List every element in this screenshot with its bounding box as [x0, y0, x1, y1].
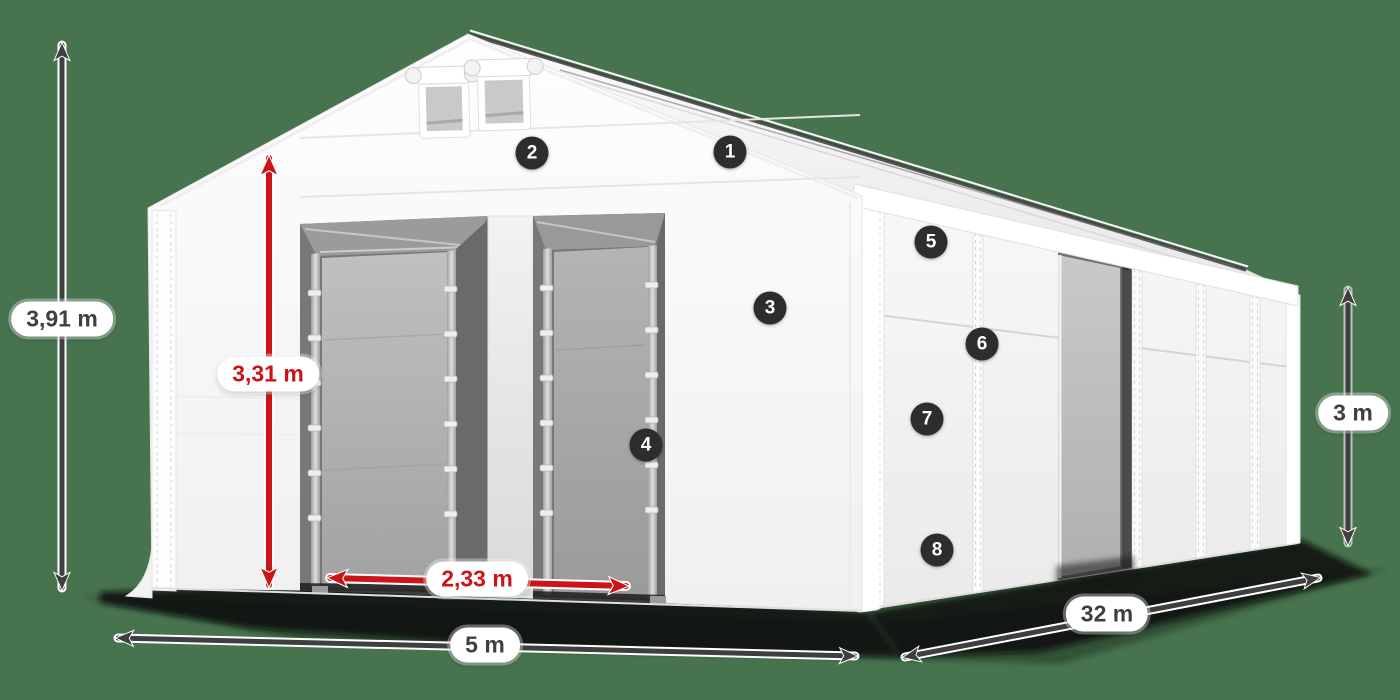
window-roll-right	[464, 58, 543, 77]
left-door-curtain	[322, 252, 450, 590]
tent-diagram: 3,91 m 3,31 m 2,33 m 5 m 32 m 3 m 1 2 3 …	[0, 0, 1400, 700]
tent	[126, 31, 1300, 613]
left-door-pole-right	[447, 250, 456, 590]
back-corner-band	[1286, 292, 1300, 545]
side-wall	[852, 184, 1300, 612]
side-door-pole	[1122, 266, 1131, 569]
front-left-skirt	[126, 545, 152, 598]
front-door-opening-right	[533, 213, 666, 606]
right-opening-gap	[657, 213, 665, 601]
side-door-panel	[1058, 255, 1120, 577]
tent-illustration	[0, 0, 1400, 700]
side-door-opening	[1056, 252, 1134, 586]
front-door-opening-left	[300, 216, 488, 596]
front-middle-pillar	[488, 216, 533, 597]
left-opening-gap	[456, 220, 488, 593]
left-door-pole-left	[311, 253, 320, 588]
right-door-curtain	[554, 247, 648, 598]
